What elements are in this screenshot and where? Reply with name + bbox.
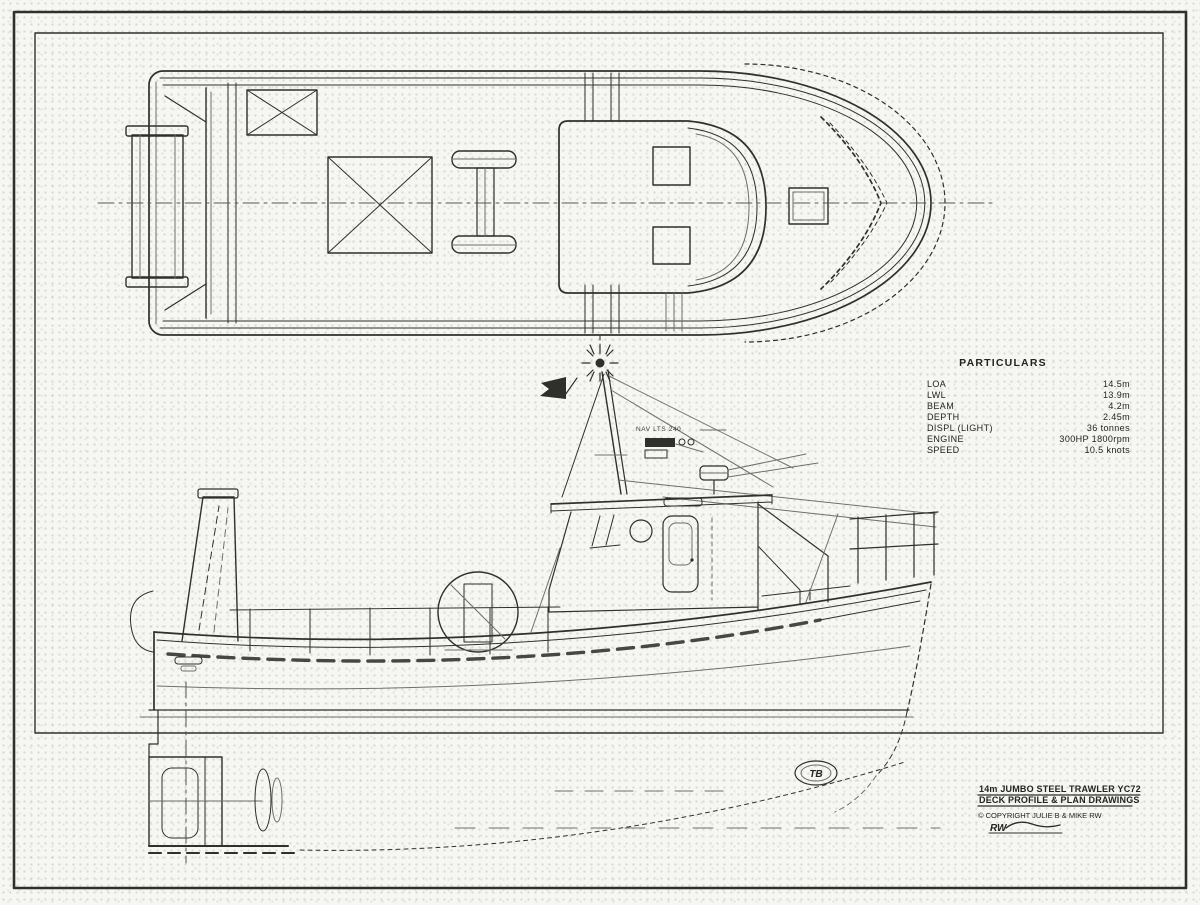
net-drum-plan: [126, 126, 188, 287]
waterline: [140, 710, 913, 717]
row-value: 36 tonnes: [1087, 423, 1130, 433]
mooring-bitt-small: [181, 666, 196, 671]
stern-gantry-post: [182, 489, 238, 641]
particulars-row: DISPL (LIGHT) 36 tonnes: [927, 423, 1130, 433]
particulars-table: PARTICULARS LOA 14.5m LWL 13.9m BEAM 4.2…: [927, 357, 1130, 455]
row-label: DEPTH: [927, 412, 960, 422]
mast-note-text: NAV LTS 240: [636, 426, 681, 433]
title-block: 14m JUMBO STEEL TRAWLER YC72 DECK PROFIL…: [978, 784, 1141, 834]
mast-annotation: NAV LTS 240: [636, 426, 726, 458]
row-value: 13.9m: [1103, 390, 1130, 400]
row-label: LOA: [927, 379, 946, 389]
row-label: BEAM: [927, 401, 954, 411]
row-label: LWL: [927, 390, 946, 400]
wheelhouse-door: [663, 516, 698, 592]
wheelhouse-profile: [549, 495, 838, 612]
signature-initials: RW: [990, 823, 1008, 834]
profile-view: [130, 480, 940, 863]
wheelhouse-roof: [551, 495, 772, 504]
wheelhouse-windows: [590, 515, 620, 548]
bow-stem: [835, 584, 931, 812]
porthole: [630, 520, 652, 542]
signal-flag: [540, 377, 577, 399]
stern-profile: [130, 591, 202, 757]
row-value: 300HP 1800rpm: [1059, 434, 1130, 444]
row-value: 4.2m: [1108, 401, 1130, 411]
deck-hatch-small: [247, 90, 317, 135]
particulars-row: SPEED 10.5 knots: [927, 445, 1130, 455]
particulars-row: ENGINE 300HP 1800rpm: [927, 434, 1130, 444]
logo-text: TB: [809, 769, 822, 780]
trawler-drawing-canvas: NAV LTS 240: [0, 0, 1200, 905]
blueprint-page: NAV LTS 240: [0, 0, 1200, 905]
row-value: 10.5 knots: [1084, 445, 1130, 455]
signature-scribble: [1006, 822, 1060, 828]
mast-light-starburst: [582, 345, 618, 381]
winch-plan: [452, 151, 516, 253]
forward-hatch-plan: [789, 188, 828, 224]
railing-aft: [230, 607, 560, 655]
particulars-title: PARTICULARS: [959, 357, 1047, 369]
particulars-row: LOA 14.5m: [927, 379, 1130, 389]
mooring-bitt: [175, 657, 202, 664]
particulars-row: LWL 13.9m: [927, 390, 1130, 400]
row-value: 14.5m: [1103, 379, 1130, 389]
wheelhouse-plan: [559, 121, 766, 293]
winch-drum-profile: [438, 572, 518, 652]
row-value: 2.45m: [1103, 412, 1130, 422]
row-label: SPEED: [927, 445, 960, 455]
fish-hatch-large: [328, 157, 432, 253]
title-line-2: DECK PROFILE & PLAN DRAWINGS: [979, 795, 1140, 805]
radar-scanner: [700, 454, 818, 494]
row-label: ENGINE: [927, 434, 964, 444]
copyright-line: © COPYRIGHT JULIE B & MIKE RW: [978, 811, 1103, 820]
particulars-row: DEPTH 2.45m: [927, 412, 1130, 422]
stern-davit: [130, 591, 153, 652]
rudder: [149, 757, 262, 846]
propeller: [255, 769, 282, 831]
mast-rigging-detail: NAV LTS 240: [531, 336, 818, 632]
particulars-row: BEAM 4.2m: [927, 401, 1130, 411]
builder-logo: TB: [795, 761, 837, 785]
scupper-band: [168, 620, 820, 661]
plan-view: [98, 64, 996, 342]
row-label: DISPL (LIGHT): [927, 423, 993, 433]
title-line-1: 14m JUMBO STEEL TRAWLER YC72: [979, 784, 1141, 794]
